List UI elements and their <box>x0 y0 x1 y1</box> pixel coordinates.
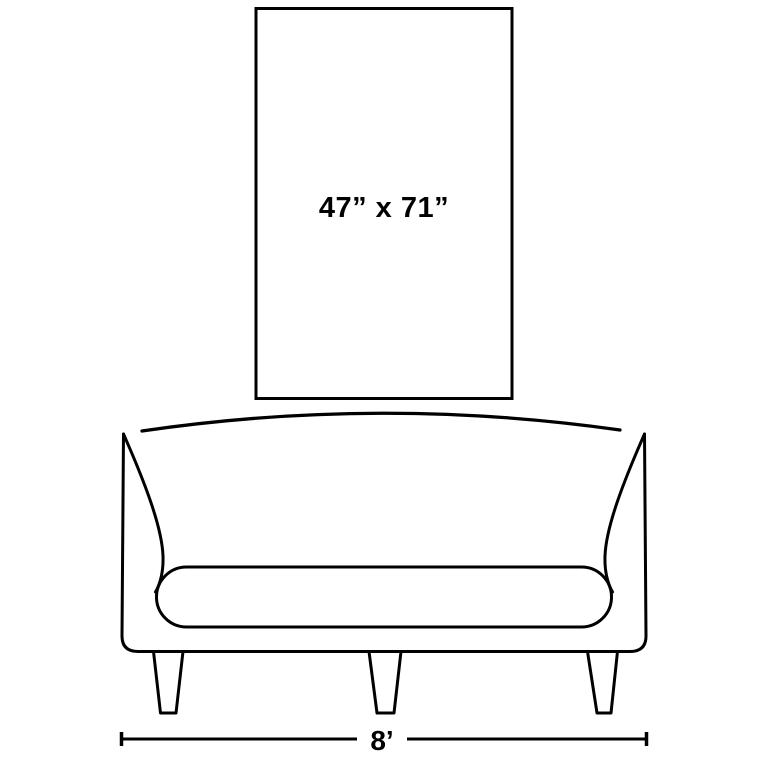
sofa-left-arm-curve <box>124 434 164 592</box>
size-comparison-diagram: 47” x 71” 8’ <box>0 0 768 768</box>
sofa-illustration <box>122 413 646 713</box>
diagram-svg: 47” x 71” 8’ <box>0 0 768 768</box>
artwork-dimensions-label: 47” x 71” <box>319 192 449 224</box>
sofa-body-outline <box>122 434 646 652</box>
width-dimension-label: 8’ <box>370 725 393 756</box>
sofa-leg-middle <box>369 652 401 714</box>
sofa-right-arm-curve <box>605 434 645 592</box>
sofa-leg-right <box>588 652 618 714</box>
sofa-back-arch <box>142 413 620 431</box>
sofa-seat-cushion <box>157 567 612 627</box>
sofa-leg-left <box>154 652 184 714</box>
